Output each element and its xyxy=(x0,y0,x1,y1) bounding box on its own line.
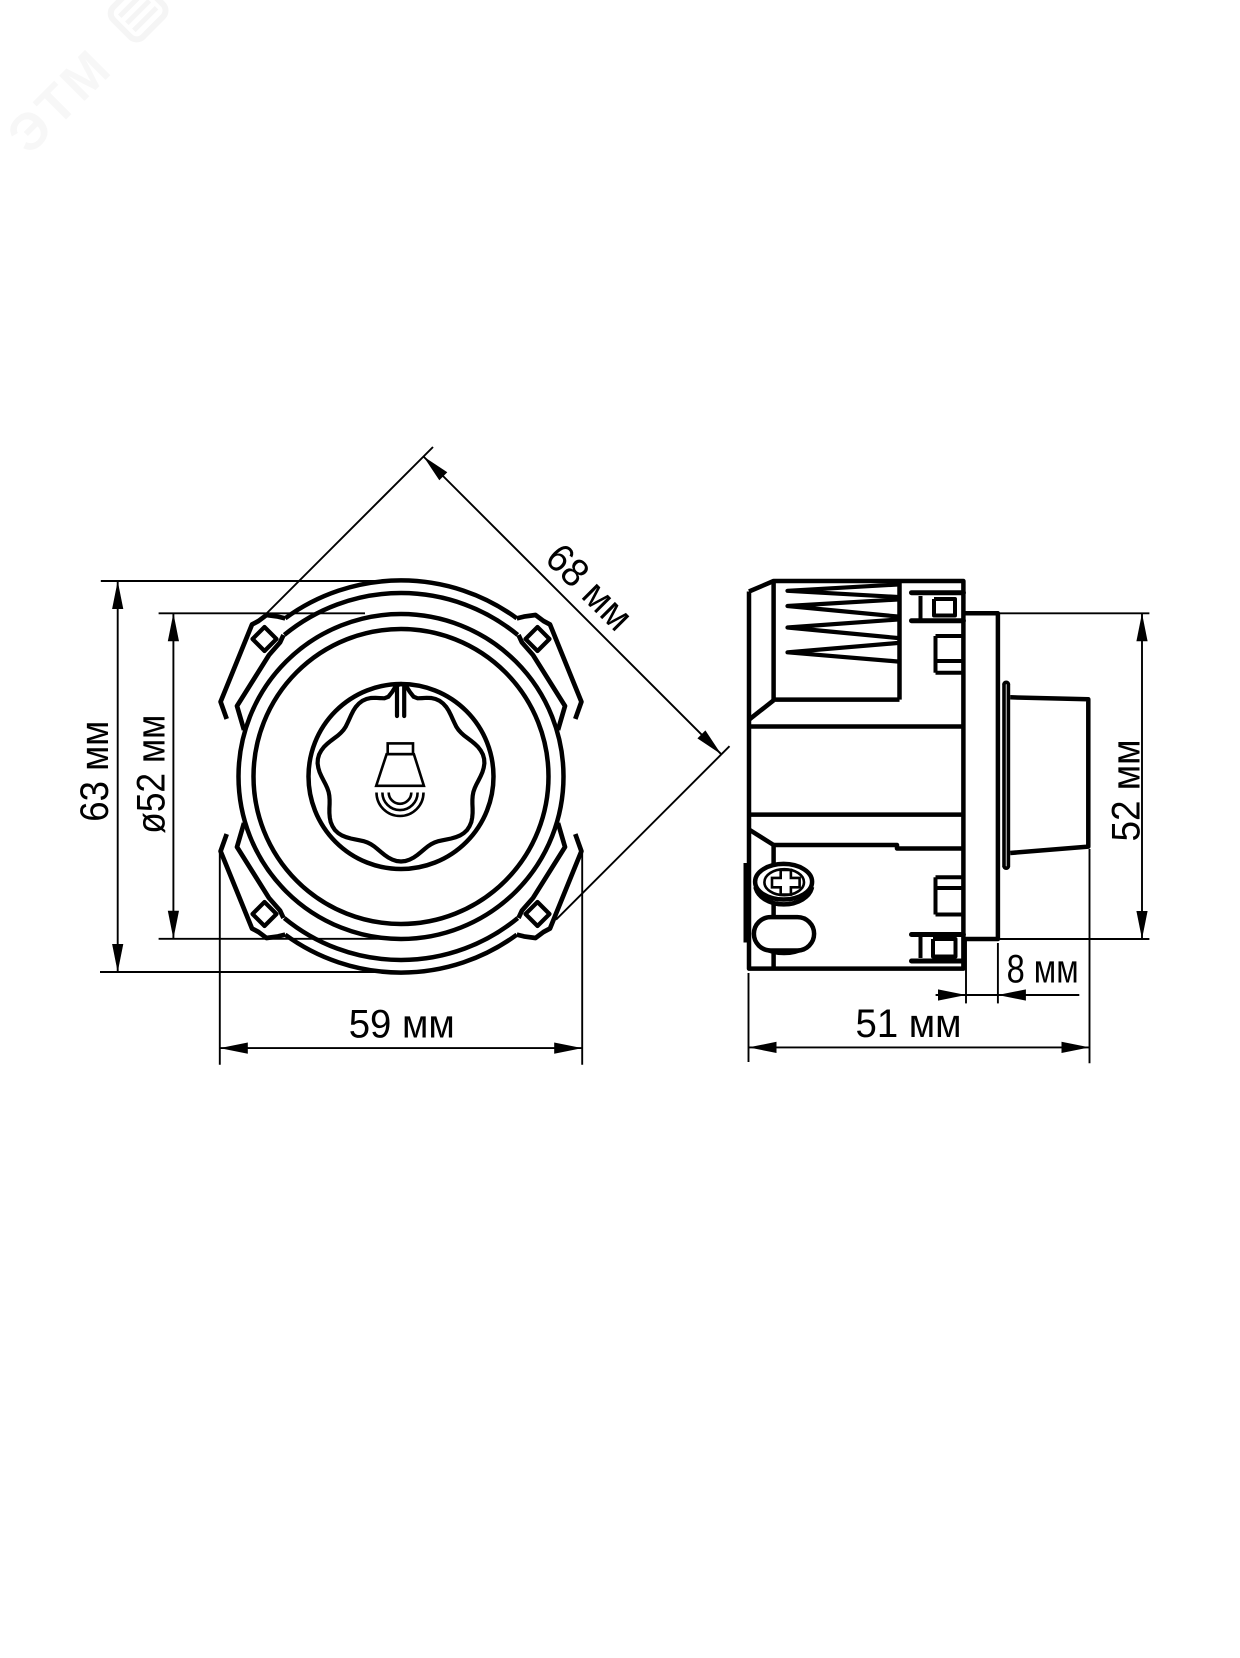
svg-text:52 мм: 52 мм xyxy=(1105,740,1149,842)
svg-text:51 мм: 51 мм xyxy=(856,1002,962,1046)
svg-text:ø52 мм: ø52 мм xyxy=(130,715,174,834)
svg-text:8 мм: 8 мм xyxy=(1007,947,1079,991)
svg-text:63 мм: 63 мм xyxy=(73,721,117,822)
svg-text:59 мм: 59 мм xyxy=(349,1002,455,1046)
